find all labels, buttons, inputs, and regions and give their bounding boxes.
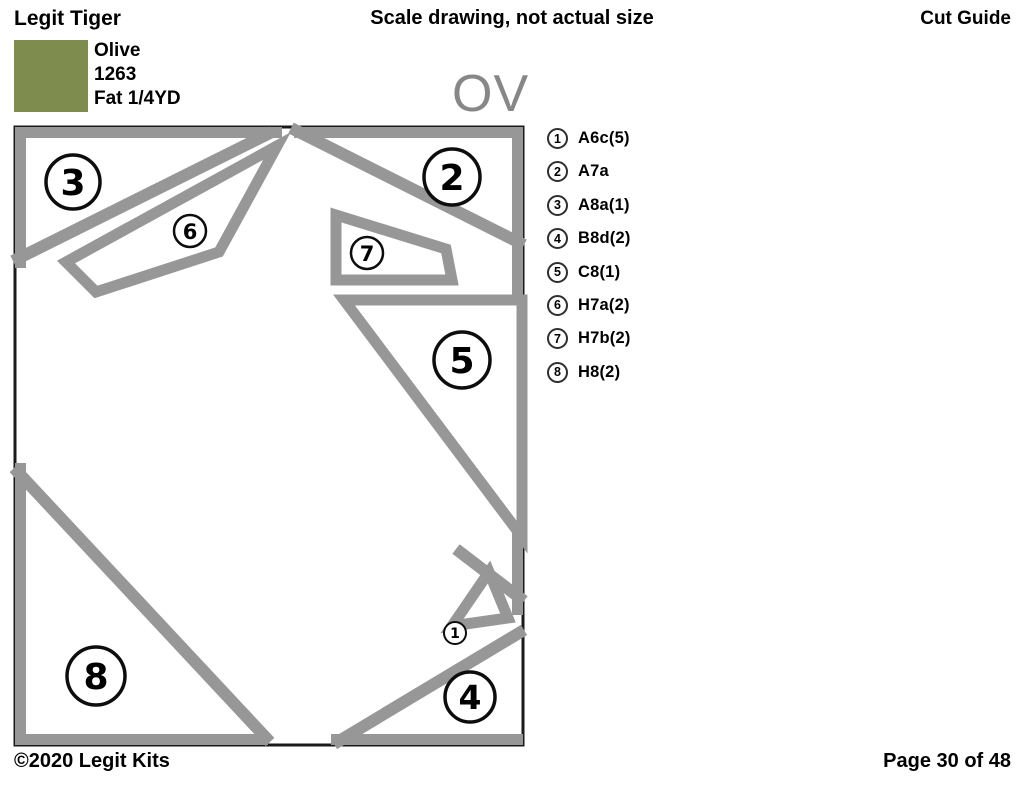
marker-number-3: 3: [60, 163, 85, 204]
legend-circle-1: 1: [547, 128, 568, 149]
border-strip-top-left: [15, 127, 282, 138]
legend-circle-5: 5: [547, 262, 568, 283]
legend-item: 4 B8d(2): [547, 228, 631, 249]
marker-piece5: 5: [434, 332, 490, 388]
marker-number-5: 5: [449, 341, 474, 382]
legend-item: 2 A7a: [547, 161, 631, 182]
marker-piece8: 8: [67, 647, 125, 705]
legend-label-1: A6c(5): [578, 129, 630, 148]
marker-piece2: 2: [424, 149, 480, 205]
legend-label-2: A7a: [578, 162, 609, 181]
marker-number-2: 2: [439, 158, 464, 199]
marker-piece4: 4: [445, 672, 495, 722]
legend-label-3: A8a(1): [578, 196, 630, 215]
marker-piece3: 3: [46, 155, 100, 209]
legend-item: 6 H7a(2): [547, 295, 631, 316]
border-strip-bottom-left: [15, 734, 268, 745]
legend-circle-4: 4: [547, 228, 568, 249]
legend-circle-7: 7: [547, 328, 568, 349]
border-strip-bottom-right: [331, 734, 523, 745]
border-strip-left-upper: [15, 127, 26, 268]
legend-label-7: H7b(2): [578, 329, 631, 348]
marker-number-1: 1: [450, 626, 460, 642]
marker-number-6: 6: [183, 220, 198, 244]
legend-item: 7 H7b(2): [547, 328, 631, 349]
legend-label-5: C8(1): [578, 263, 620, 282]
border-strip-left-lower: [15, 463, 26, 745]
marker-number-4: 4: [459, 678, 482, 717]
legend-label-4: B8d(2): [578, 229, 631, 248]
page-indicator: Page 30 of 48: [883, 750, 1011, 773]
marker-piece7: 7: [351, 237, 383, 269]
legend-item: 8 H8(2): [547, 362, 631, 383]
legend-item: 1 A6c(5): [547, 128, 631, 149]
legend-circle-8: 8: [547, 362, 568, 383]
piece-legend: 1 A6c(5) 2 A7a 3 A8a(1) 4 B8d(2) 5 C8(1)…: [547, 128, 631, 395]
cut-diagram: 3 2 6 7 5 1 8 4: [0, 0, 1024, 792]
legend-item: 5 C8(1): [547, 262, 631, 283]
marker-number-8: 8: [83, 657, 108, 698]
legend-label-8: H8(2): [578, 363, 620, 382]
legend-item: 3 A8a(1): [547, 195, 631, 216]
marker-piece6: 6: [174, 215, 206, 247]
legend-label-6: H7a(2): [578, 296, 630, 315]
legend-circle-3: 3: [547, 195, 568, 216]
cut-guide-page: Legit Tiger Scale drawing, not actual si…: [0, 0, 1024, 792]
legend-circle-2: 2: [547, 161, 568, 182]
marker-piece1: 1: [444, 622, 466, 644]
border-strip-top-right: [294, 127, 523, 138]
copyright-text: ©2020 Legit Kits: [14, 750, 170, 773]
marker-number-7: 7: [360, 242, 375, 266]
legend-circle-6: 6: [547, 295, 568, 316]
